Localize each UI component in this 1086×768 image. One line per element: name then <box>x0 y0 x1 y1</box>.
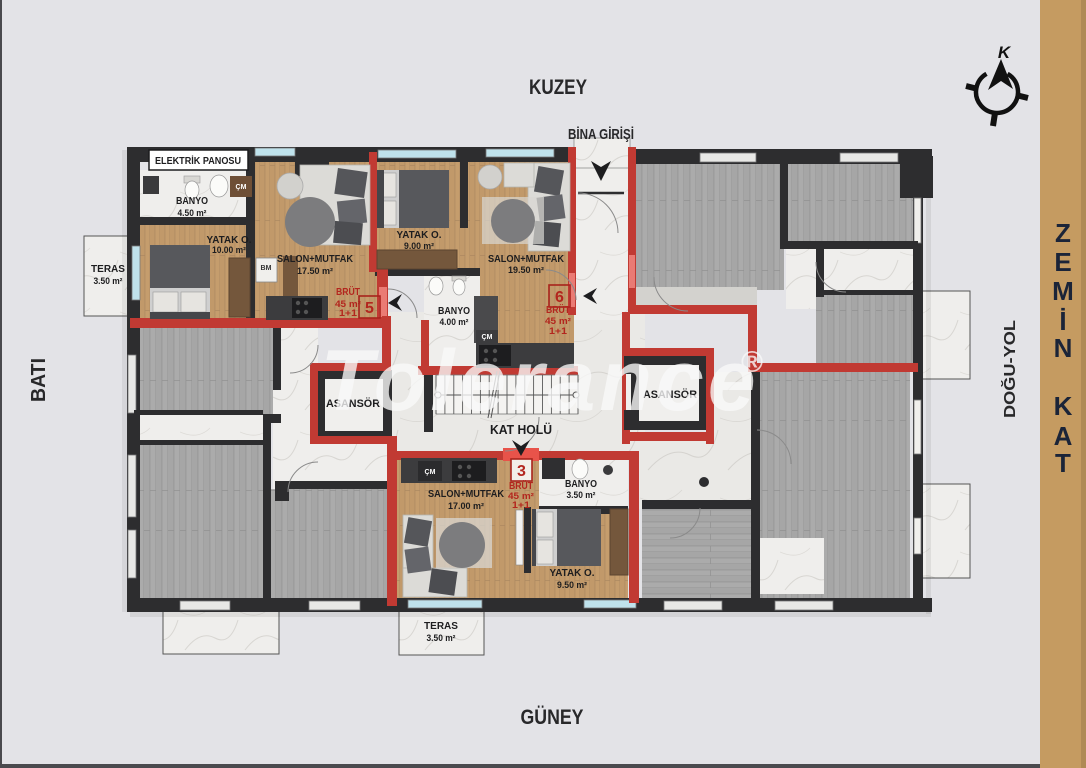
svg-text:6: 6 <box>555 289 564 306</box>
svg-text:SALON+MUTFAK: SALON+MUTFAK <box>488 254 565 265</box>
svg-text:3.50 m²: 3.50 m² <box>94 276 123 286</box>
svg-text:YATAK O.: YATAK O. <box>550 568 595 579</box>
svg-text:SALON+MUTFAK: SALON+MUTFAK <box>428 489 505 500</box>
svg-text:19.50 m²: 19.50 m² <box>508 265 544 275</box>
svg-text:E: E <box>1054 247 1071 277</box>
svg-text:BANYO: BANYO <box>176 196 208 207</box>
svg-text:Tolerance: Tolerance <box>320 333 759 429</box>
svg-text:KUZEY: KUZEY <box>529 76 587 99</box>
svg-text:1+1: 1+1 <box>512 500 530 510</box>
svg-text:17.50 m²: 17.50 m² <box>297 266 333 276</box>
svg-text:BANYO: BANYO <box>438 306 470 317</box>
svg-text:SALON+MUTFAK: SALON+MUTFAK <box>277 254 354 265</box>
svg-text:GÜNEY: GÜNEY <box>521 706 584 729</box>
svg-text:45 m²: 45 m² <box>545 316 571 326</box>
svg-text:10.00 m²: 10.00 m² <box>212 245 246 255</box>
svg-text:İ: İ <box>1059 306 1066 336</box>
svg-text:K: K <box>998 43 1012 62</box>
svg-text:ÇM: ÇM <box>236 184 247 191</box>
svg-text:9.50 m²: 9.50 m² <box>557 580 587 590</box>
svg-text:YATAK O.: YATAK O. <box>397 230 442 241</box>
svg-text:N: N <box>1054 333 1073 363</box>
svg-text:BİNA GİRİŞİ: BİNA GİRİŞİ <box>568 126 634 143</box>
svg-text:BANYO: BANYO <box>565 479 597 490</box>
svg-text:5: 5 <box>365 300 374 317</box>
svg-text:4.50 m²: 4.50 m² <box>178 208 207 218</box>
svg-text:1+1: 1+1 <box>339 308 357 318</box>
svg-text:A: A <box>1054 421 1073 451</box>
svg-text:4.00 m²: 4.00 m² <box>440 317 469 327</box>
svg-text:BM: BM <box>261 265 272 272</box>
svg-text:®: ® <box>741 346 763 379</box>
svg-text:BRÜT: BRÜT <box>336 285 360 298</box>
svg-text:ELEKTRİK PANOSU: ELEKTRİK PANOSU <box>155 154 241 167</box>
svg-text:K: K <box>1054 391 1073 421</box>
svg-text:3: 3 <box>517 463 526 480</box>
svg-text:BRÜT: BRÜT <box>546 303 570 316</box>
svg-text:17.00 m²: 17.00 m² <box>448 501 484 511</box>
svg-text:Z: Z <box>1055 218 1071 248</box>
svg-text:9.00 m²: 9.00 m² <box>404 241 434 251</box>
svg-text:M: M <box>1052 276 1074 306</box>
svg-text:DOĞU-YOL: DOĞU-YOL <box>1000 320 1019 418</box>
svg-text:3.50 m²: 3.50 m² <box>567 490 596 500</box>
svg-text:TERAS: TERAS <box>91 264 125 275</box>
svg-text:ÇM: ÇM <box>425 469 436 476</box>
svg-text:3.50 m²: 3.50 m² <box>427 633 456 643</box>
svg-text:BATI: BATI <box>28 358 50 402</box>
svg-text:TERAS: TERAS <box>424 621 458 632</box>
svg-text:T: T <box>1055 448 1071 478</box>
